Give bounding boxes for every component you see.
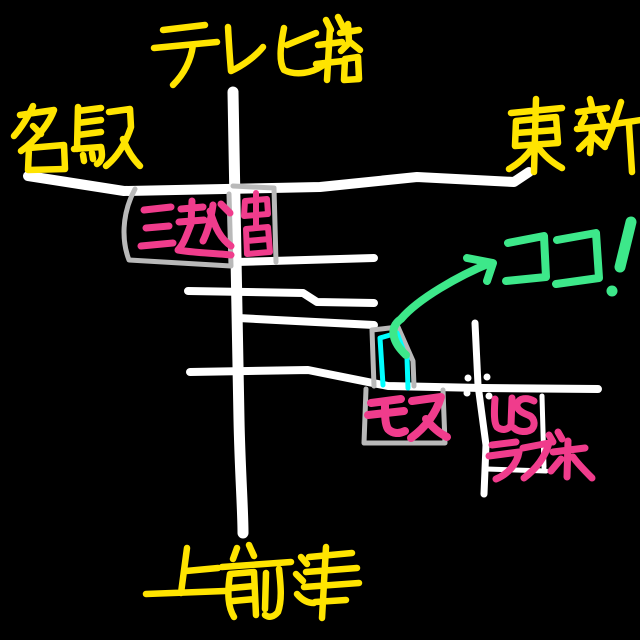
kamimaezu-label	[146, 545, 359, 618]
road-mid-2	[188, 291, 374, 303]
mitsukoshi-label	[141, 201, 231, 255]
mos-label	[368, 397, 447, 438]
road-horizontal-top	[28, 172, 529, 191]
map-drawing	[0, 0, 640, 640]
tv-tower-label	[154, 17, 360, 85]
road-horizontal-lower	[190, 370, 598, 389]
road-vertical-right	[475, 323, 486, 494]
hand-drawn-map: テレビ塔 名駅 東新 上前津 三越 中日 モス US ラブホ ココ!	[0, 0, 640, 640]
road-mid-3	[238, 318, 374, 325]
road-vertical-main	[233, 92, 243, 533]
chunichi-label	[244, 193, 270, 254]
exclamation-dot	[607, 286, 618, 297]
road-mid-1	[236, 258, 374, 262]
toshin-label	[509, 99, 640, 172]
meieki-label	[14, 106, 140, 170]
here-label	[506, 222, 631, 297]
exclamation-bar	[620, 222, 631, 267]
area-labels	[14, 17, 640, 618]
